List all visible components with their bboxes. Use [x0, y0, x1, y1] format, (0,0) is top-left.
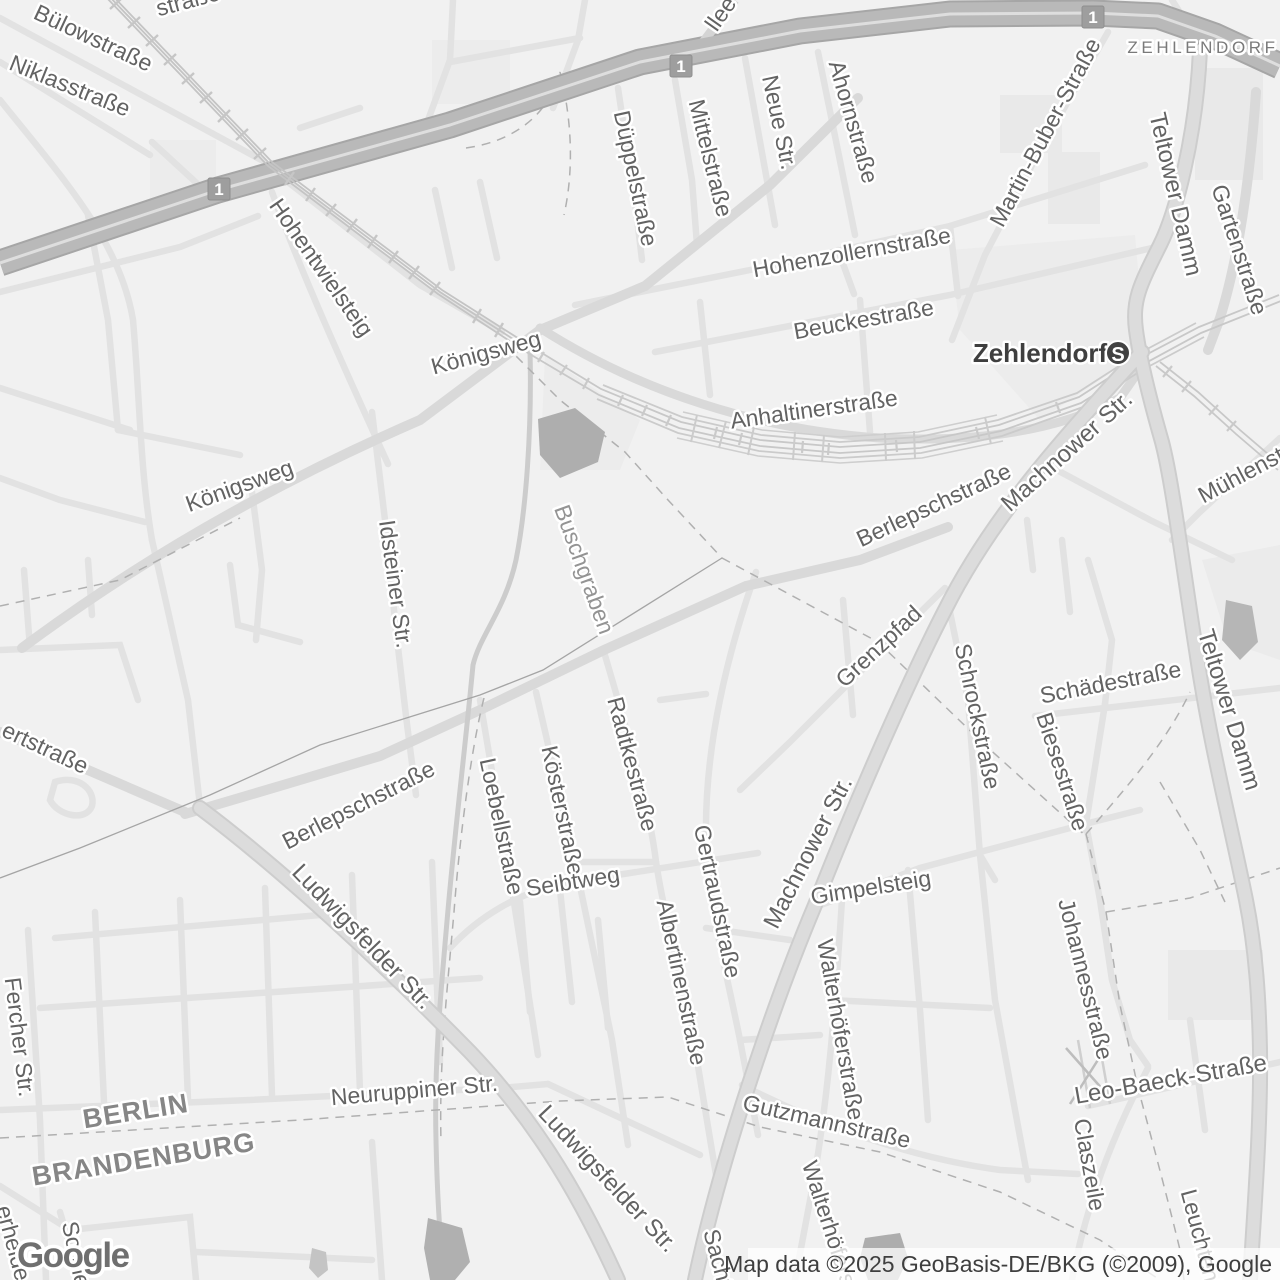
svg-text:Zehlendorf: Zehlendorf	[973, 338, 1108, 368]
svg-text:1: 1	[1088, 8, 1097, 27]
svg-text:Google: Google	[17, 1236, 130, 1275]
svg-text:1: 1	[676, 57, 685, 76]
svg-text:ZEHLENDORF: ZEHLENDORF	[1127, 38, 1278, 57]
svg-text:Map data ©2025 GeoBasis-DE/BKG: Map data ©2025 GeoBasis-DE/BKG (©2009), …	[724, 1251, 1272, 1277]
svg-text:S: S	[1111, 344, 1124, 366]
svg-text:1: 1	[214, 180, 223, 199]
